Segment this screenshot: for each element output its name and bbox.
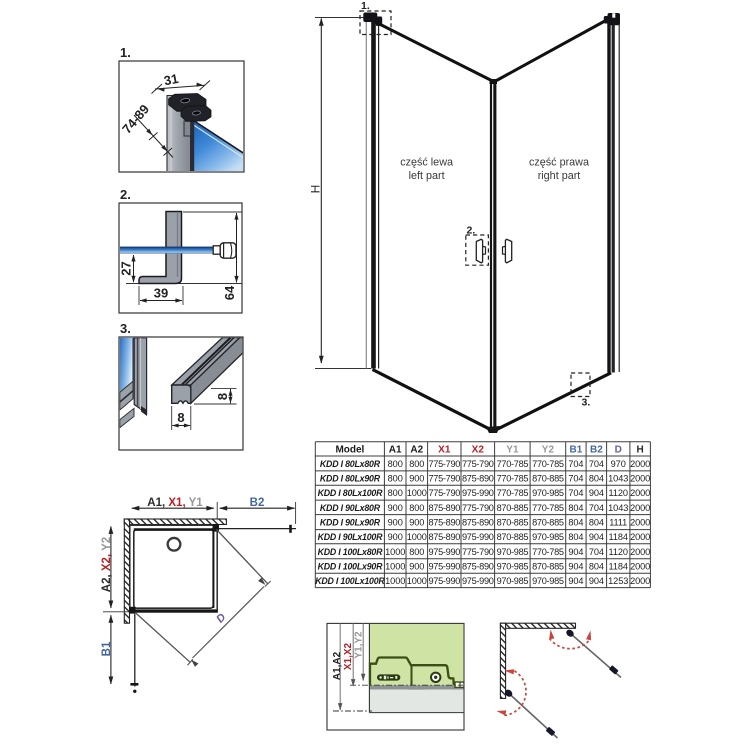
svg-text:970-985: 970-985 bbox=[532, 532, 564, 542]
svg-text:1184: 1184 bbox=[609, 562, 628, 572]
svg-text:800: 800 bbox=[409, 503, 424, 513]
svg-text:H: H bbox=[636, 445, 643, 456]
svg-text:804: 804 bbox=[589, 518, 604, 528]
svg-text:Model: Model bbox=[335, 445, 364, 456]
svg-text:775-790: 775-790 bbox=[462, 459, 494, 469]
svg-text:X2: X2 bbox=[472, 445, 485, 456]
svg-text:KDD I 80Lx80R: KDD I 80Lx80R bbox=[320, 459, 381, 469]
svg-text:804: 804 bbox=[589, 474, 604, 484]
svg-text:KDD I 90Lx100R: KDD I 90Lx100R bbox=[318, 532, 384, 542]
svg-text:2000: 2000 bbox=[630, 488, 650, 498]
svg-text:3.: 3. bbox=[582, 397, 591, 409]
svg-text:975-990: 975-990 bbox=[462, 576, 494, 586]
svg-text:904: 904 bbox=[568, 562, 583, 572]
svg-text:804: 804 bbox=[568, 518, 583, 528]
svg-text:2000: 2000 bbox=[630, 518, 650, 528]
svg-text:875-890: 875-890 bbox=[462, 474, 494, 484]
svg-text:2000: 2000 bbox=[630, 532, 650, 542]
svg-text:704: 704 bbox=[568, 459, 583, 469]
svg-text:1043: 1043 bbox=[608, 474, 628, 484]
svg-text:3.: 3. bbox=[120, 321, 131, 336]
svg-text:975-990: 975-990 bbox=[428, 576, 460, 586]
svg-text:804: 804 bbox=[589, 562, 604, 572]
svg-text:900: 900 bbox=[409, 474, 424, 484]
svg-text:804: 804 bbox=[568, 532, 583, 542]
svg-text:1000: 1000 bbox=[385, 562, 405, 572]
svg-text:39: 39 bbox=[154, 286, 168, 301]
svg-text:1253: 1253 bbox=[608, 576, 628, 586]
svg-text:1.: 1. bbox=[120, 45, 131, 60]
svg-text:775-790: 775-790 bbox=[428, 488, 460, 498]
svg-text:870-885: 870-885 bbox=[497, 518, 529, 528]
svg-text:704: 704 bbox=[568, 488, 583, 498]
svg-text:800: 800 bbox=[409, 459, 424, 469]
svg-text:X1,X2: X1,X2 bbox=[343, 642, 354, 670]
svg-text:775-790: 775-790 bbox=[428, 459, 460, 469]
svg-text:970-985: 970-985 bbox=[497, 562, 529, 572]
svg-text:right part: right part bbox=[538, 170, 581, 182]
svg-text:870-885: 870-885 bbox=[532, 518, 564, 528]
svg-text:część lewa: część lewa bbox=[400, 157, 453, 169]
svg-text:870-885: 870-885 bbox=[532, 562, 564, 572]
svg-text:870-885: 870-885 bbox=[532, 474, 564, 484]
svg-text:904: 904 bbox=[589, 576, 604, 586]
svg-text:970-985: 970-985 bbox=[532, 576, 564, 586]
svg-text:770-785: 770-785 bbox=[532, 459, 564, 469]
svg-text:2.: 2. bbox=[120, 187, 131, 202]
svg-text:2000: 2000 bbox=[630, 503, 650, 513]
svg-text:B2: B2 bbox=[590, 445, 603, 456]
svg-text:A1, X1, Y1: A1, X1, Y1 bbox=[147, 497, 203, 509]
svg-text:770-785: 770-785 bbox=[497, 474, 529, 484]
svg-text:1111: 1111 bbox=[609, 518, 627, 528]
svg-text:970: 970 bbox=[611, 459, 626, 469]
svg-text:875-890: 875-890 bbox=[462, 518, 494, 528]
svg-text:975-990: 975-990 bbox=[462, 488, 494, 498]
svg-text:2000: 2000 bbox=[630, 459, 650, 469]
svg-text:970-985: 970-985 bbox=[497, 547, 529, 557]
svg-text:970-985: 970-985 bbox=[532, 488, 564, 498]
svg-text:875-890: 875-890 bbox=[428, 532, 460, 542]
svg-text:left part: left part bbox=[409, 170, 445, 182]
svg-text:2000: 2000 bbox=[630, 576, 650, 586]
svg-text:900: 900 bbox=[409, 518, 424, 528]
svg-text:KDD I 90Lx90R: KDD I 90Lx90R bbox=[320, 518, 381, 528]
svg-text:część prawa: część prawa bbox=[529, 157, 589, 169]
svg-text:2000: 2000 bbox=[630, 562, 650, 572]
svg-text:704: 704 bbox=[589, 547, 604, 557]
svg-text:1000: 1000 bbox=[407, 488, 427, 498]
svg-text:1000: 1000 bbox=[385, 547, 405, 557]
svg-text:900: 900 bbox=[388, 503, 403, 513]
svg-text:1120: 1120 bbox=[609, 488, 628, 498]
svg-text:1.: 1. bbox=[361, 0, 370, 12]
svg-text:900: 900 bbox=[409, 562, 424, 572]
svg-text:975-990: 975-990 bbox=[428, 562, 460, 572]
svg-text:704: 704 bbox=[568, 474, 583, 484]
svg-text:770-785: 770-785 bbox=[497, 488, 529, 498]
svg-text:1000: 1000 bbox=[407, 532, 427, 542]
svg-text:27: 27 bbox=[119, 261, 134, 275]
svg-text:Y1: Y1 bbox=[506, 445, 519, 456]
svg-text:775-790: 775-790 bbox=[462, 503, 494, 513]
svg-text:A1,A2: A1,A2 bbox=[332, 651, 343, 680]
svg-text:800: 800 bbox=[388, 474, 403, 484]
svg-text:A2: A2 bbox=[410, 445, 423, 456]
svg-text:904: 904 bbox=[589, 532, 604, 542]
svg-text:775-790: 775-790 bbox=[462, 547, 494, 557]
svg-text:8: 8 bbox=[215, 393, 230, 400]
svg-text:900: 900 bbox=[388, 532, 403, 542]
svg-text:1000: 1000 bbox=[407, 576, 427, 586]
svg-text:875-890: 875-890 bbox=[428, 518, 460, 528]
svg-text:800: 800 bbox=[388, 488, 403, 498]
svg-text:1184: 1184 bbox=[609, 532, 628, 542]
svg-text:X1: X1 bbox=[438, 445, 451, 456]
svg-text:D: D bbox=[615, 445, 622, 456]
svg-text:1043: 1043 bbox=[608, 503, 628, 513]
svg-text:B2: B2 bbox=[250, 497, 265, 509]
svg-text:875-890: 875-890 bbox=[428, 503, 460, 513]
svg-text:704: 704 bbox=[589, 503, 604, 513]
svg-text:2000: 2000 bbox=[630, 547, 650, 557]
svg-text:800: 800 bbox=[388, 459, 403, 469]
svg-text:64: 64 bbox=[222, 285, 237, 300]
svg-text:904: 904 bbox=[568, 547, 583, 557]
svg-text:900: 900 bbox=[388, 518, 403, 528]
svg-text:770-785: 770-785 bbox=[532, 547, 564, 557]
svg-text:775-790: 775-790 bbox=[428, 474, 460, 484]
svg-text:KDD I 90Lx80R: KDD I 90Lx80R bbox=[320, 503, 381, 513]
svg-text:770-785: 770-785 bbox=[497, 459, 529, 469]
svg-text:8: 8 bbox=[177, 410, 184, 425]
svg-text:1120: 1120 bbox=[609, 547, 628, 557]
svg-text:KDD I 80Lx90R: KDD I 80Lx90R bbox=[320, 474, 381, 484]
svg-text:KDD I 100Lx80R: KDD I 100Lx80R bbox=[318, 547, 384, 557]
svg-text:770-785: 770-785 bbox=[532, 503, 564, 513]
svg-text:31: 31 bbox=[163, 71, 180, 88]
svg-text:KDD I 100Lx90R: KDD I 100Lx90R bbox=[318, 562, 384, 572]
svg-text:975-990: 975-990 bbox=[462, 532, 494, 542]
svg-text:B1: B1 bbox=[570, 445, 583, 456]
svg-text:800: 800 bbox=[409, 547, 424, 557]
svg-text:975-990: 975-990 bbox=[428, 547, 460, 557]
svg-text:970-985: 970-985 bbox=[497, 576, 529, 586]
svg-text:904: 904 bbox=[568, 576, 583, 586]
svg-text:904: 904 bbox=[589, 488, 604, 498]
svg-text:2.: 2. bbox=[467, 225, 476, 237]
svg-text:870-885: 870-885 bbox=[497, 503, 529, 513]
svg-text:1000: 1000 bbox=[385, 576, 405, 586]
svg-text:804: 804 bbox=[568, 503, 583, 513]
svg-text:KDD I 100Lx100R: KDD I 100Lx100R bbox=[315, 576, 385, 586]
svg-text:704: 704 bbox=[589, 459, 604, 469]
svg-text:Y1,Y2: Y1,Y2 bbox=[353, 631, 364, 659]
svg-text:KDD I 80Lx100R: KDD I 80Lx100R bbox=[318, 488, 384, 498]
svg-text:Y2: Y2 bbox=[542, 445, 555, 456]
svg-text:H: H bbox=[308, 185, 322, 194]
svg-text:2000: 2000 bbox=[630, 474, 650, 484]
svg-text:A1: A1 bbox=[389, 445, 402, 456]
svg-text:875-890: 875-890 bbox=[462, 562, 494, 572]
svg-text:870-885: 870-885 bbox=[497, 532, 529, 542]
